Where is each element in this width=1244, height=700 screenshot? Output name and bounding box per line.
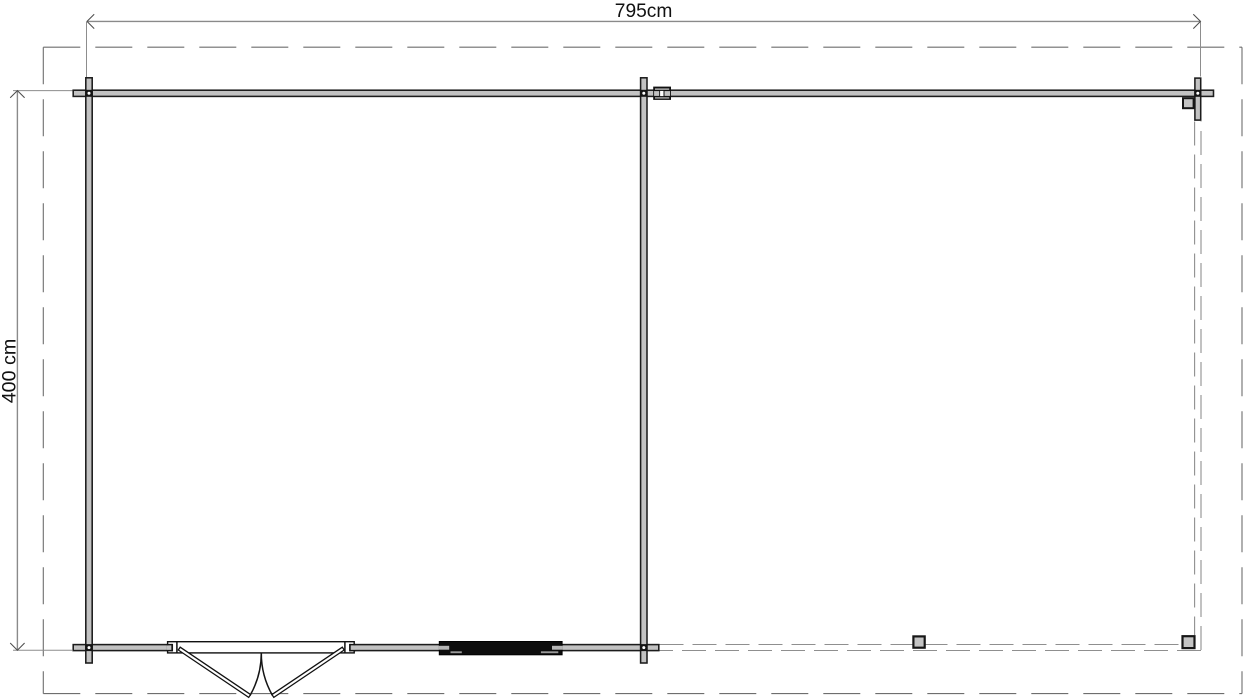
svg-text:795cm: 795cm xyxy=(615,1,673,22)
svg-text:400 cm: 400 cm xyxy=(0,339,21,404)
